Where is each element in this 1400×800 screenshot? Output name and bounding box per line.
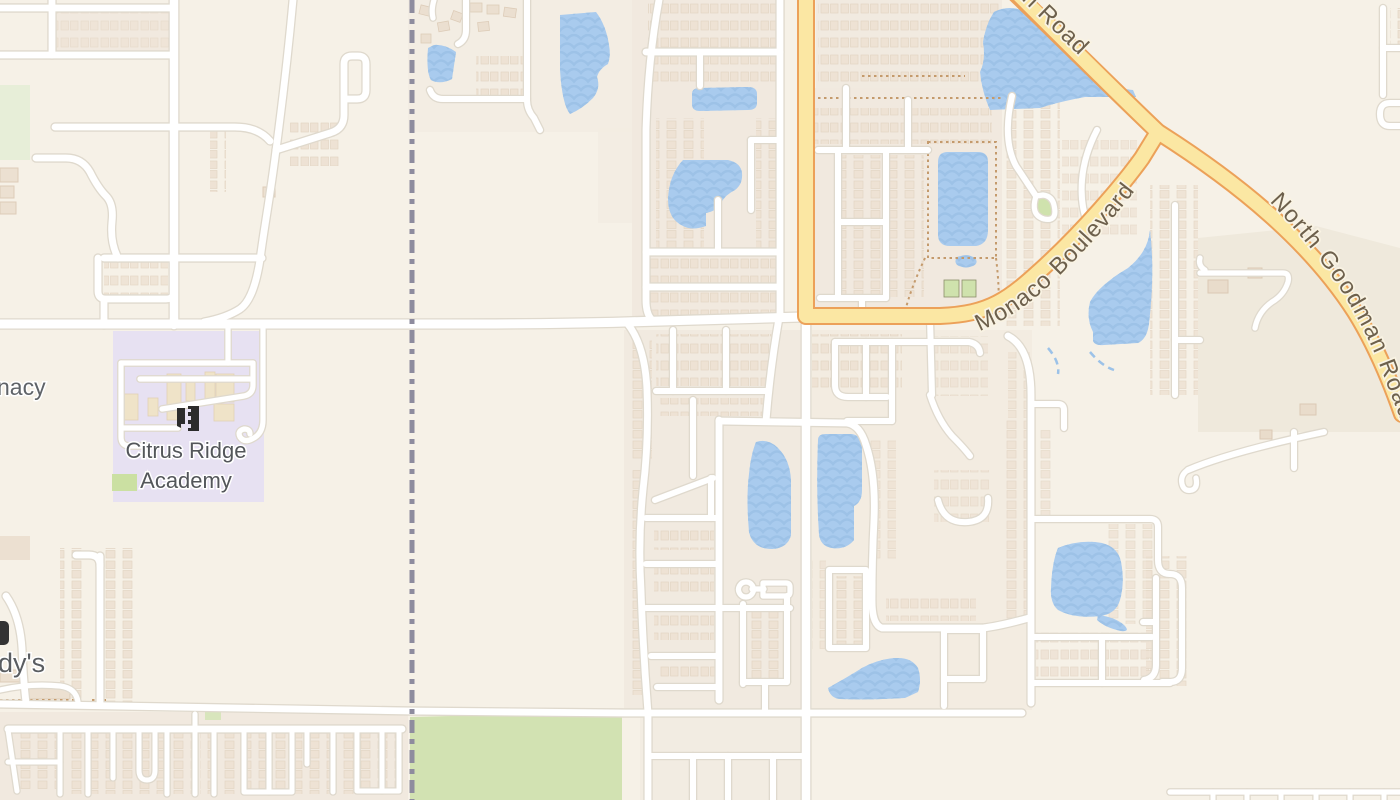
svg-text:Academy: Academy xyxy=(140,468,232,493)
svg-text:dy's: dy's xyxy=(0,648,45,678)
svg-text:Citrus Ridge: Citrus Ridge xyxy=(125,438,246,463)
svg-text:nacy: nacy xyxy=(0,374,46,400)
